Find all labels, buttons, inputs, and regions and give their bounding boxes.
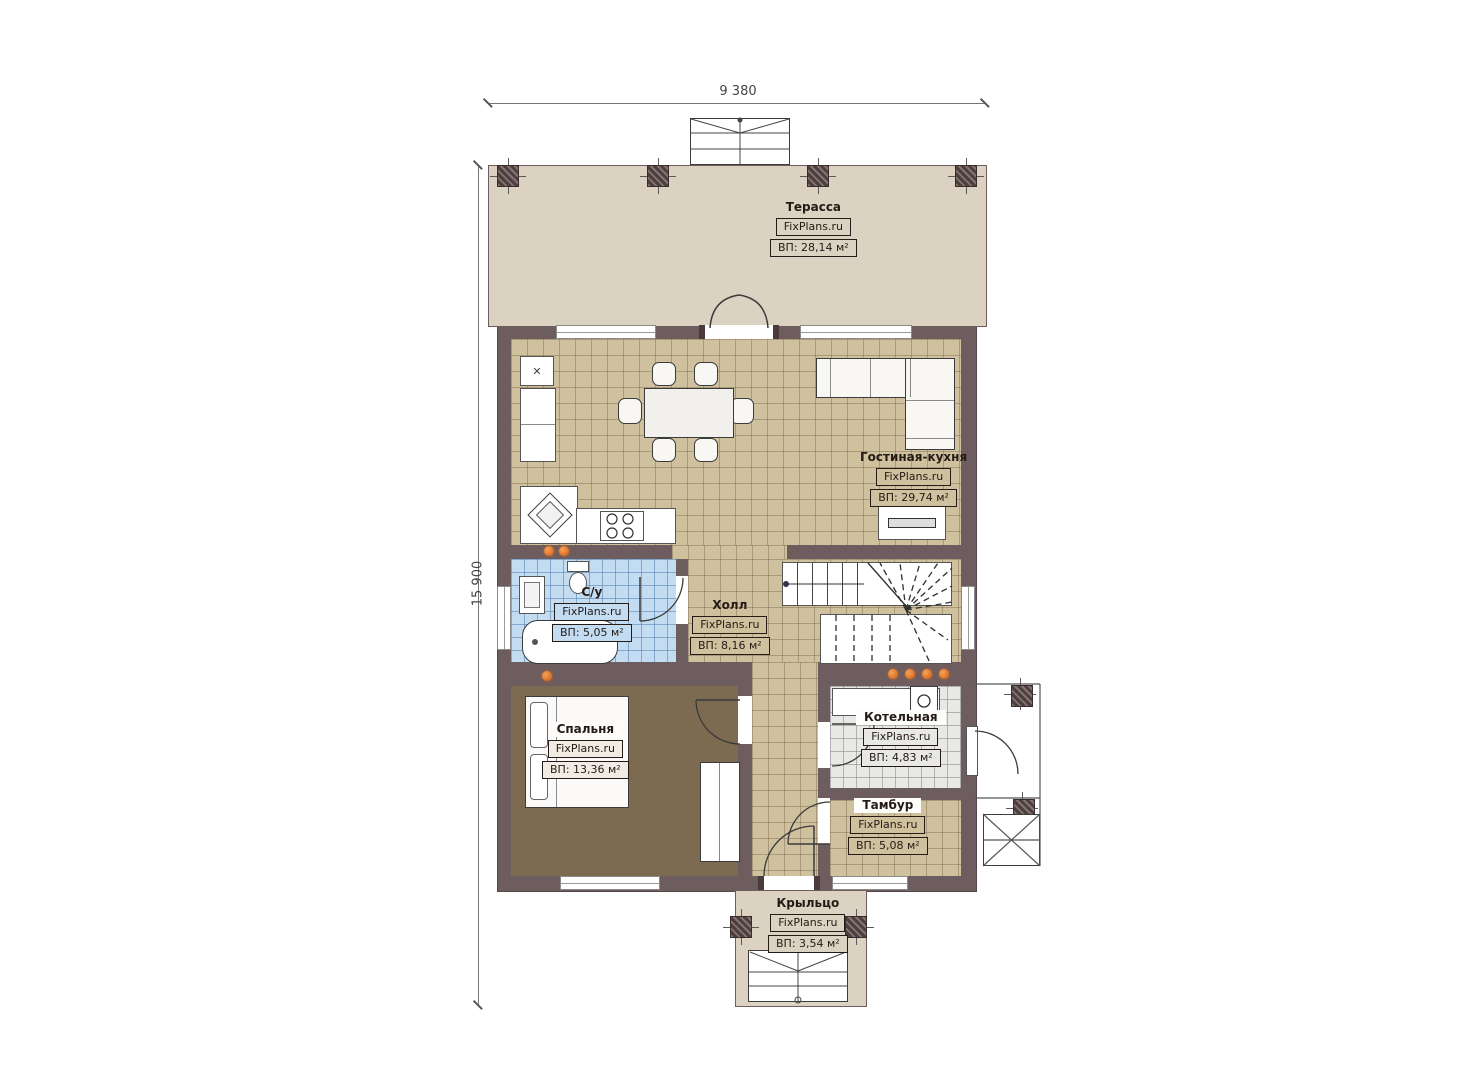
living-hall-opening-floor	[672, 545, 787, 559]
room-label-living-kitchen: Гостиная-кухня FixPlans.ru ВП: 29,74 м²	[852, 450, 975, 507]
column-mark	[723, 909, 759, 945]
room-name: С/у	[573, 585, 610, 600]
room-name: Холл	[704, 598, 755, 613]
column-mark	[800, 158, 836, 194]
area-box: ВП: 29,74 м²	[870, 489, 957, 507]
door-jamb	[773, 325, 779, 339]
area-box: ВП: 8,16 м²	[690, 637, 770, 655]
room-label-boiler: Котельная FixPlans.ru ВП: 4,83 м²	[856, 710, 946, 767]
floor-plan-canvas: 9 380 15 900 ✕	[0, 0, 1473, 1080]
area-box: ВП: 28,14 м²	[770, 239, 857, 257]
entry-door-opening	[764, 876, 814, 890]
brand-box: FixPlans.ru	[876, 468, 951, 486]
window	[961, 586, 975, 650]
boiler-door-opening	[818, 722, 830, 768]
column-mark	[1004, 678, 1036, 710]
window	[556, 325, 656, 339]
sofa-armrest-line	[906, 438, 954, 439]
chair	[652, 438, 676, 462]
brand-box: FixPlans.ru	[554, 603, 629, 621]
dimension-height-label: 15 900	[471, 544, 486, 624]
sofa-cushion-line	[910, 359, 911, 397]
sofa-corner-seat	[905, 358, 955, 450]
radiator-dot	[559, 546, 569, 556]
radiator-dot	[544, 546, 554, 556]
door-jamb	[758, 876, 764, 890]
room-label-bathroom: С/у FixPlans.ru ВП: 5,05 м²	[552, 585, 632, 642]
chair	[694, 362, 718, 386]
wardrobe	[700, 762, 740, 862]
window	[800, 325, 912, 339]
chair	[694, 438, 718, 462]
room-name: Тамбур	[854, 798, 921, 813]
terrace-steps	[690, 118, 790, 165]
area-box: ВП: 13,36 м²	[542, 761, 629, 779]
room-name: Котельная	[856, 710, 946, 725]
side-porch-steps	[983, 814, 1040, 866]
chair	[618, 398, 642, 424]
sofa-cushion-line	[870, 359, 871, 397]
window	[832, 876, 908, 890]
kitchen-tall-unit	[520, 388, 556, 462]
wall-segment	[818, 686, 830, 876]
wall-segment	[511, 545, 672, 559]
stair-treads	[783, 563, 867, 605]
brand-box: FixPlans.ru	[770, 914, 845, 932]
bedroom-door-opening	[738, 696, 752, 744]
brand-box: FixPlans.ru	[692, 616, 767, 634]
stove-icon	[600, 511, 644, 541]
tv-icon	[888, 518, 936, 528]
area-box: ВП: 5,05 м²	[552, 624, 632, 642]
wall-segment	[787, 545, 961, 559]
sofa-armrest-line	[830, 359, 831, 397]
column-mark	[640, 158, 676, 194]
corridor-floor	[752, 662, 818, 876]
radiator-dot	[888, 669, 898, 679]
room-name: Гостиная-кухня	[852, 450, 975, 465]
stair-lower-flight	[820, 614, 952, 664]
area-box: ВП: 4,83 м²	[861, 749, 941, 767]
window	[560, 876, 660, 890]
door-jamb	[814, 876, 820, 890]
column-mark	[490, 158, 526, 194]
radiator-dot	[905, 669, 915, 679]
brand-box: FixPlans.ru	[548, 740, 623, 758]
room-name: Крыльцо	[768, 896, 847, 911]
radiator-dot	[542, 671, 552, 681]
door-jamb	[699, 325, 705, 339]
area-box: ВП: 3,54 м²	[768, 935, 848, 953]
wardrobe-door-line	[719, 763, 720, 861]
room-name: Терасса	[778, 200, 849, 215]
radiator-dot	[922, 669, 932, 679]
vent-shaft-icon: ✕	[520, 356, 554, 386]
radiator-dot	[939, 669, 949, 679]
brand-box: FixPlans.ru	[863, 728, 938, 746]
door-swing-arc	[975, 731, 1018, 774]
column-mark	[948, 158, 984, 194]
window	[497, 586, 511, 650]
room-label-porch: Крыльцо FixPlans.ru ВП: 3,54 м²	[768, 896, 848, 953]
brand-box: FixPlans.ru	[776, 218, 851, 236]
boiler-exterior-door-leaf	[966, 726, 978, 776]
furniture-line	[521, 424, 555, 425]
room-label-terrace: Терасса FixPlans.ru ВП: 28,14 м²	[770, 200, 857, 257]
room-name: Спальня	[549, 722, 623, 737]
sofa-cushion-line	[906, 400, 954, 401]
dimension-width-label: 9 380	[688, 84, 788, 99]
area-box: ВП: 5,08 м²	[848, 837, 928, 855]
bathtub-drain	[532, 639, 538, 645]
tambour-door-opening	[818, 798, 830, 844]
chair	[652, 362, 676, 386]
terrace-door-opening	[705, 325, 773, 339]
room-label-bedroom: Спальня FixPlans.ru ВП: 13,36 м²	[542, 722, 629, 779]
toilet-tank	[567, 561, 589, 572]
dimension-line-top	[488, 103, 985, 104]
room-label-hall: Холл FixPlans.ru ВП: 8,16 м²	[690, 598, 770, 655]
porch-steps	[748, 950, 848, 1002]
brand-box: FixPlans.ru	[850, 816, 925, 834]
washbasin-bowl	[524, 582, 540, 608]
dining-table	[644, 388, 734, 438]
room-label-tambour: Тамбур FixPlans.ru ВП: 5,08 м²	[848, 798, 928, 855]
bathroom-door-opening	[676, 576, 688, 624]
terrace-area	[488, 165, 987, 327]
